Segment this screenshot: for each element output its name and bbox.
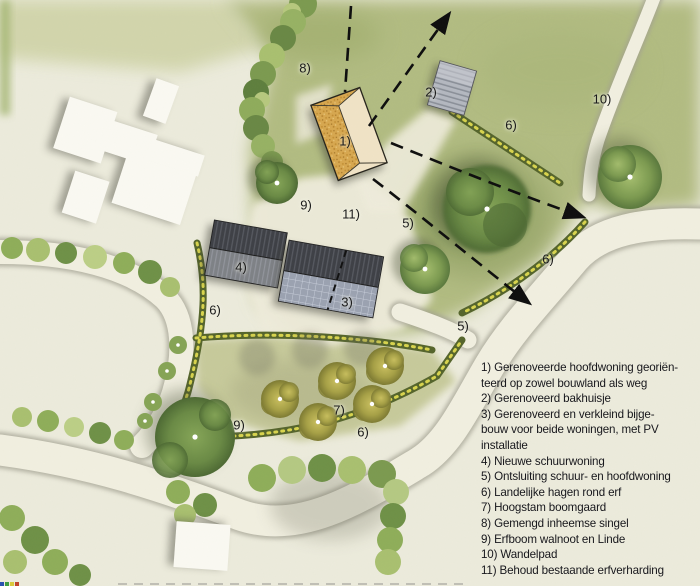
legend-line: 7) Hoogstam boomgaard bbox=[481, 500, 700, 516]
legend-line: 1) Gerenoveerde hoofdwoning georiën- bbox=[481, 360, 700, 376]
plan-label-3: 3) bbox=[341, 295, 353, 310]
plan-label-2: 2) bbox=[425, 85, 437, 100]
legend-line: installatie bbox=[481, 438, 700, 454]
plan-label-1: 1) bbox=[339, 134, 351, 149]
legend-line: 2) Gerenoveerd bakhuisje bbox=[481, 391, 700, 407]
site-plan: 8) 2) 10) 6) 1) 9) 11) 5) 6) 4) 3) 6) 5)… bbox=[0, 0, 700, 586]
plan-label-8: 8) bbox=[299, 61, 311, 76]
legend-line: 3) Gerenoveerd en verkleind bijge- bbox=[481, 407, 700, 423]
plan-label-10: 10) bbox=[593, 92, 612, 107]
plan-label-9a: 9) bbox=[300, 198, 312, 213]
legend-line: 9) Erfboom walnoot en Linde bbox=[481, 532, 700, 548]
plan-label-6a: 6) bbox=[505, 118, 517, 133]
plan-label-11: 11) bbox=[342, 207, 360, 222]
legend-line: 4) Nieuwe schuurwoning bbox=[481, 454, 700, 470]
legend-line: 6) Landelijke hagen rond erf bbox=[481, 485, 700, 501]
plan-label-5b: 5) bbox=[457, 319, 469, 334]
color-chip bbox=[0, 582, 4, 586]
color-chips bbox=[0, 582, 20, 586]
legend-line: 8) Gemengd inheemse singel bbox=[481, 516, 700, 532]
plan-label-9b: 9) bbox=[233, 418, 245, 433]
plan-label-6c: 6) bbox=[209, 303, 221, 318]
plan-label-5a: 5) bbox=[402, 216, 414, 231]
plan-label-6b: 6) bbox=[542, 252, 554, 267]
legend-line: teerd op zowel bouwland als weg bbox=[481, 376, 700, 392]
legend-line: bouw voor beide woningen, met PV bbox=[481, 422, 700, 438]
plan-label-7: 7) bbox=[333, 403, 345, 418]
legend-line: 5) Ontsluiting schuur- en hoofdwoning bbox=[481, 469, 700, 485]
legend-line: 11) Behoud bestaande erfverharding bbox=[481, 563, 700, 579]
plan-label-6d: 6) bbox=[357, 425, 369, 440]
plan-label-4: 4) bbox=[235, 260, 247, 275]
legend: 1) Gerenoveerde hoofdwoning georiën- tee… bbox=[481, 360, 700, 578]
cropped-caption-remnant bbox=[118, 583, 468, 585]
color-chip bbox=[15, 582, 19, 586]
color-chip bbox=[10, 582, 14, 586]
color-chip bbox=[5, 582, 9, 586]
legend-line: 10) Wandelpad bbox=[481, 547, 700, 563]
